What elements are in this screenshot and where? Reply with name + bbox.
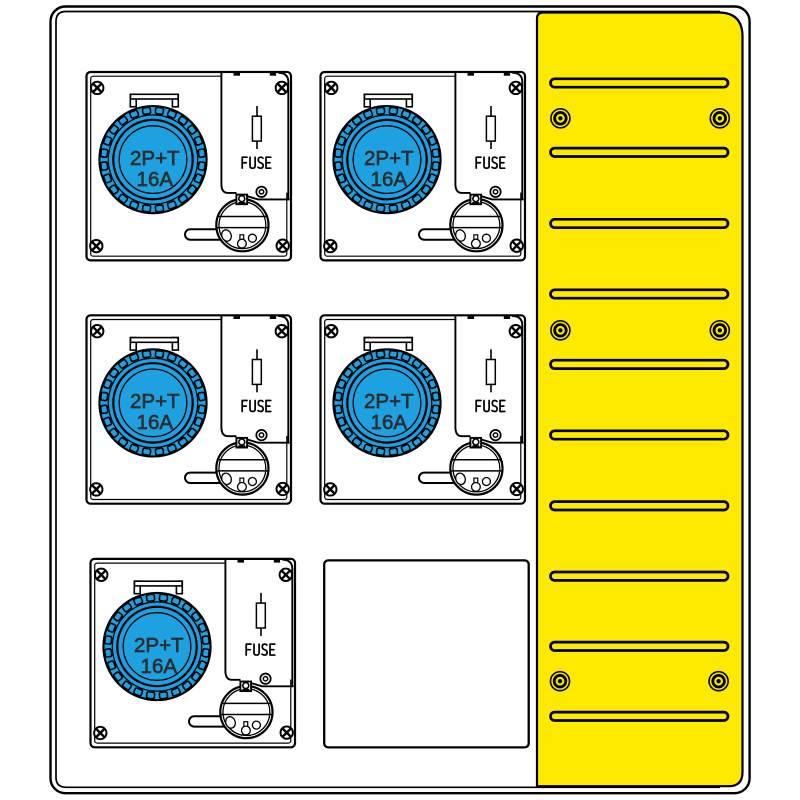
svg-text:2P+T: 2P+T bbox=[130, 390, 180, 413]
svg-text:16A: 16A bbox=[137, 168, 174, 191]
svg-text:2P+T: 2P+T bbox=[364, 390, 414, 413]
svg-text:16A: 16A bbox=[371, 168, 408, 191]
svg-text:2P+T: 2P+T bbox=[134, 634, 184, 657]
svg-text:16A: 16A bbox=[141, 655, 178, 678]
svg-text:16A: 16A bbox=[137, 411, 174, 434]
svg-text:2P+T: 2P+T bbox=[130, 147, 180, 170]
svg-text:2P+T: 2P+T bbox=[364, 147, 414, 170]
svg-text:16A: 16A bbox=[371, 411, 408, 434]
